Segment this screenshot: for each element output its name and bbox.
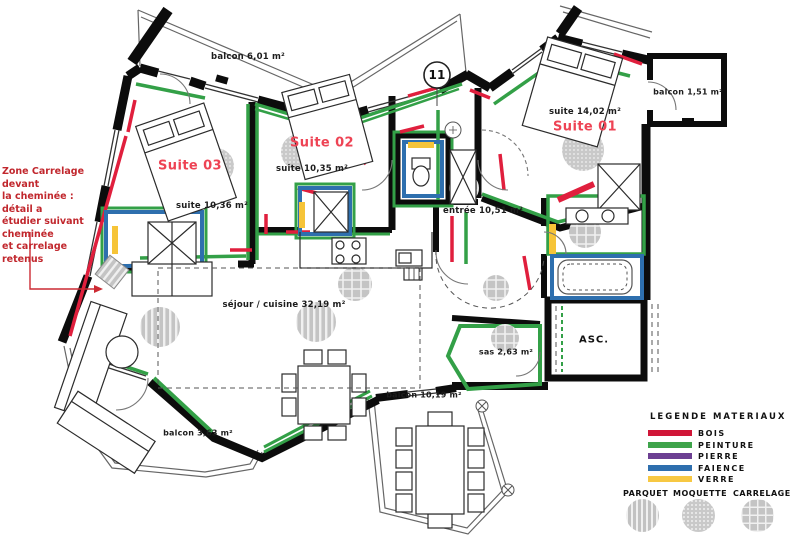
toilet (412, 158, 430, 186)
label-balcon-bottom-left: balcon 3,63 m² (163, 429, 233, 438)
legend-label-peinture: PEINTURE (698, 441, 755, 450)
floor-plan-page: balcon 6,01 m² balcon 1,51 m² Suite 03 s… (0, 0, 800, 545)
legend-label-carrelage: CARRELAGE (733, 489, 791, 498)
parquet-marker (140, 307, 180, 347)
legend-swatch-bois (648, 430, 692, 436)
legend-swatch-verre (648, 476, 692, 482)
legend-label-verre: VERRE (698, 475, 735, 484)
parquet-sample-icon (626, 499, 659, 532)
balcony-right-pier (682, 118, 694, 126)
closet-entree (450, 150, 476, 204)
annotation-note: Zone Carrelage devant la cheminée : déta… (2, 166, 106, 266)
label-suite3-title: Suite 03 (158, 159, 222, 174)
bathtub (558, 260, 632, 294)
label-suite2-title: Suite 02 (290, 136, 354, 151)
label-sas: sas 2,63 m² (479, 348, 533, 357)
label-balcon-terrace: balcon 10,19 m² (386, 391, 462, 400)
level-marker-number: 11 (428, 68, 445, 82)
label-elevator: ASC. (579, 335, 609, 346)
carrelage-sample-icon (741, 499, 774, 532)
label-balcon-top: balcon 6,01 m² (211, 52, 285, 62)
legend-label-bois: BOIS (698, 429, 726, 438)
carrelage-marker (338, 267, 372, 301)
materials-legend: LEGENDE MATERIAUX BOIS PEINTURE PIERRE F… (618, 406, 798, 542)
carrelage-marker (483, 275, 509, 301)
coffee-table (106, 336, 138, 368)
vanity (566, 208, 628, 224)
label-entree: entrée 10,51 m² (443, 206, 523, 216)
legend-swatch-peinture (648, 442, 692, 448)
label-balcon-right: balcon 1,51 m² (653, 88, 723, 97)
legend-swatch-pierre (648, 453, 692, 459)
legend-label-faience: FAIENCE (698, 464, 746, 473)
moquette-sample-icon (682, 499, 715, 532)
shower-suite-02 (314, 192, 348, 232)
label-suite1-title: Suite 01 (553, 120, 617, 135)
legend-title: LEGENDE MATERIAUX (650, 412, 786, 422)
label-sejour: séjour / cuisine 32,19 m² (222, 300, 345, 310)
legend-label-parquet: PARQUET (623, 489, 668, 498)
closet-suite-01 (598, 164, 640, 210)
legend-label-moquette: MOQUETTE (673, 489, 727, 498)
legend-label-pierre: PIERRE (698, 452, 739, 461)
legend-swatch-faience (648, 465, 692, 471)
label-suite2-area: suite 10,35 m² (276, 164, 348, 174)
terrace-table (396, 412, 484, 528)
wall-pier (215, 74, 228, 84)
shower-suite-03 (148, 222, 196, 264)
label-suite3-area: suite 10,36 m² (176, 201, 248, 211)
label-suite1-area: suite 14,02 m² (549, 107, 621, 117)
